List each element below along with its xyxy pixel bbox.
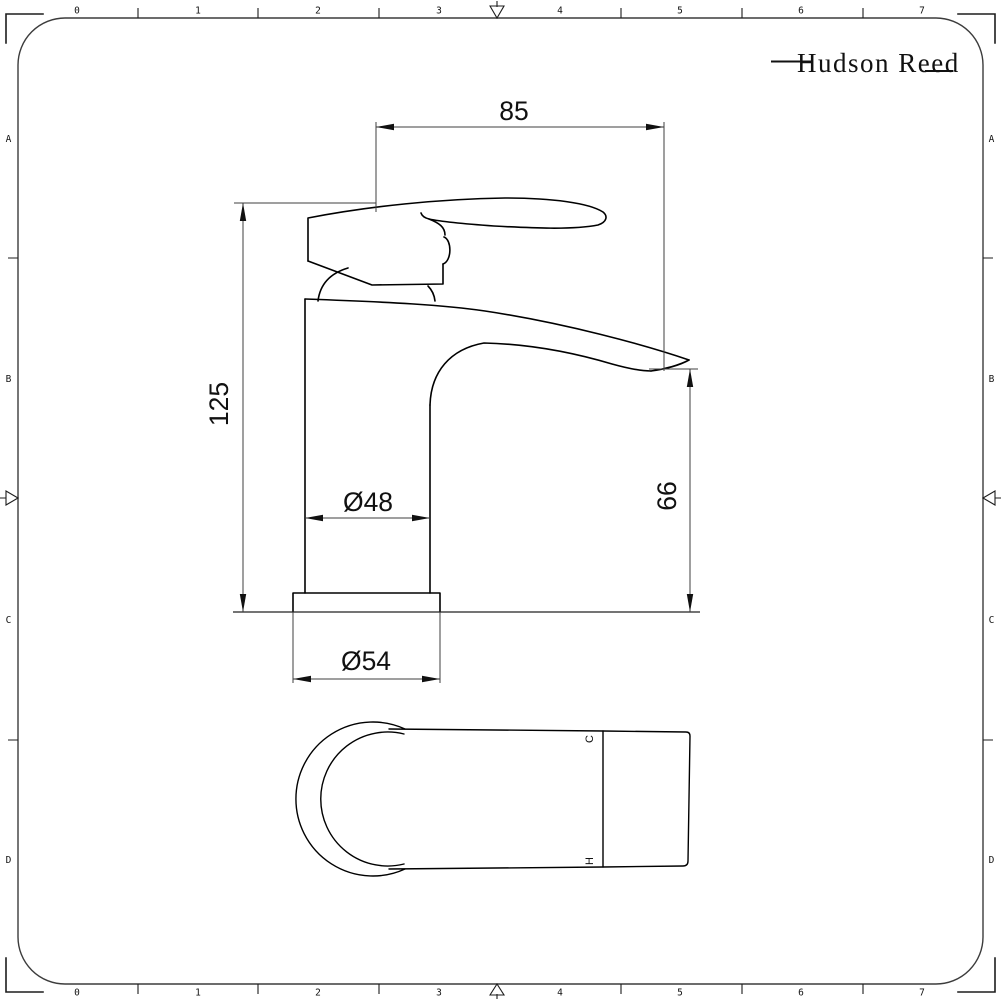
- technical-drawing-page: 0 1 2 3 4 5 6 7 0 1 2 3 4 5 6 7 A B C D …: [0, 0, 1001, 1000]
- dimension-54-text: Ø54: [341, 646, 391, 676]
- ruler-left-label-b: B: [6, 374, 12, 385]
- ruler-bottom-label-0: 0: [74, 988, 80, 999]
- ruler-top-label-3: 3: [436, 6, 442, 17]
- ruler-right-label-d: D: [989, 855, 995, 866]
- hot-indicator-label: H: [584, 857, 596, 865]
- drawing-sheet: [18, 18, 983, 984]
- ruler-left-label-a: A: [6, 134, 12, 145]
- border-ruler-right: A B C D: [983, 134, 995, 866]
- ruler-bottom-label-3: 3: [436, 988, 442, 999]
- ruler-bottom-label-7: 7: [919, 988, 925, 999]
- ruler-top-label-4: 4: [557, 6, 563, 17]
- center-marker-right: [983, 491, 1001, 505]
- ruler-right-label-c: C: [989, 615, 995, 626]
- ruler-top-label-5: 5: [677, 6, 683, 17]
- drawing-canvas: 0 1 2 3 4 5 6 7 0 1 2 3 4 5 6 7 A B C D …: [0, 0, 1001, 1000]
- border-ruler-left: A B C D: [6, 134, 18, 866]
- ruler-bottom-label-2: 2: [315, 988, 321, 999]
- cold-indicator-label: C: [584, 735, 596, 743]
- ruler-bottom-label-5: 5: [677, 988, 683, 999]
- brand-logo: Hudson Reed: [771, 48, 960, 78]
- border-ruler-bottom: 0 1 2 3 4 5 6 7: [74, 984, 925, 999]
- ruler-right-label-b: B: [989, 374, 995, 385]
- ruler-bottom-label-4: 4: [557, 988, 563, 999]
- ruler-bottom-label-1: 1: [195, 988, 201, 999]
- dimension-85-text: 85: [499, 96, 528, 126]
- dimension-48-text: Ø48: [343, 487, 393, 517]
- ruler-top-label-6: 6: [798, 6, 804, 17]
- brand-logo-text: Hudson Reed: [797, 48, 960, 78]
- ruler-bottom-label-6: 6: [798, 988, 804, 999]
- ruler-left-label-d: D: [6, 855, 12, 866]
- center-marker-top: [490, 1, 504, 18]
- dimension-66-text: 66: [652, 481, 682, 510]
- center-marker-bottom: [490, 984, 504, 999]
- border-ruler-top: 0 1 2 3 4 5 6 7: [74, 6, 925, 19]
- dimension-125-text: 125: [204, 382, 234, 426]
- sheet-border: [18, 18, 983, 984]
- ruler-right-label-a: A: [989, 134, 995, 145]
- ruler-left-label-c: C: [6, 615, 12, 626]
- center-marker-left: [0, 491, 18, 505]
- ruler-top-label-2: 2: [315, 6, 321, 17]
- ruler-top-label-0: 0: [74, 6, 80, 17]
- ruler-top-label-7: 7: [919, 6, 925, 17]
- ruler-top-label-1: 1: [195, 6, 201, 17]
